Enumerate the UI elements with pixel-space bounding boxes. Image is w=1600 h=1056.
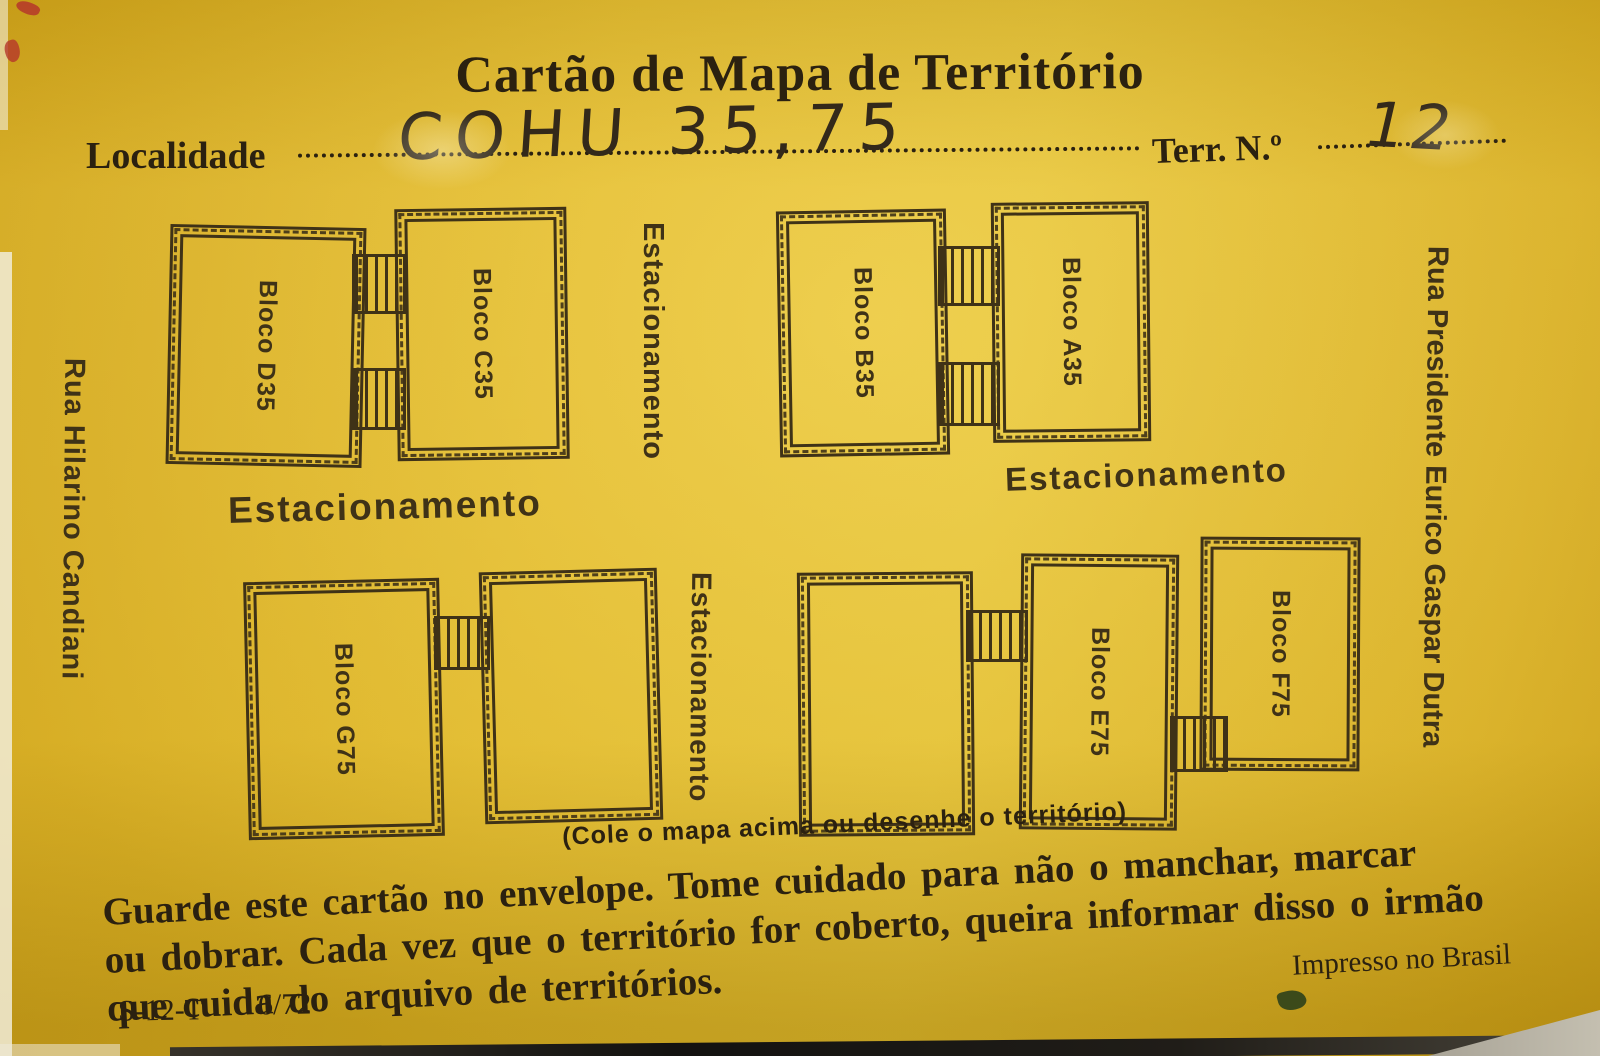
paper-smudge bbox=[372, 110, 512, 190]
block-number: 35 bbox=[848, 369, 880, 399]
block-label-empty bbox=[800, 574, 972, 833]
parking-label-right-horizontal: Estacionamento bbox=[1004, 451, 1288, 499]
block-name: Bloco G bbox=[327, 642, 361, 746]
block-name: Bloco D bbox=[250, 280, 283, 382]
block-d-label: Bloco D 35 bbox=[169, 227, 364, 465]
photo-bottom-edge bbox=[170, 1035, 1600, 1056]
street-label-left: Rua Hilarino Candiani bbox=[55, 358, 91, 681]
block-e-label: Bloco E 75 bbox=[1022, 556, 1176, 827]
locality-label: Localidade bbox=[86, 134, 265, 178]
block-e: Bloco E 75 bbox=[1019, 553, 1179, 830]
block-number: 75 bbox=[1083, 727, 1115, 757]
form-code: S-12-T bbox=[118, 993, 204, 1028]
block-g: Bloco G 75 bbox=[243, 578, 445, 840]
parking-label-left-horizontal: Estacionamento bbox=[228, 482, 543, 532]
connector-g-block bbox=[434, 616, 490, 670]
block-g-label: Bloco G 75 bbox=[246, 581, 442, 837]
block-number: 35 bbox=[467, 370, 499, 400]
parking-label-bottom-vertical: Estacionamento bbox=[683, 572, 717, 803]
block-name: Bloco A bbox=[1055, 257, 1087, 358]
connector-d-c-lower bbox=[352, 368, 406, 430]
connector-d-c-upper bbox=[352, 254, 406, 314]
block-number: 75 bbox=[329, 745, 361, 776]
block-b-label: Bloco B 35 bbox=[779, 212, 947, 455]
block-name: Bloco B bbox=[846, 267, 879, 369]
block-number: 35 bbox=[249, 381, 281, 411]
block-c: Bloco C 35 bbox=[394, 207, 570, 461]
connector-e-f bbox=[1170, 716, 1228, 772]
care-instructions: Guarde este cartão no envelope. Tome cui… bbox=[101, 823, 1556, 1033]
paper-smudge bbox=[1390, 100, 1500, 170]
connector-b-a-upper bbox=[938, 246, 1000, 306]
block-number: 35 bbox=[1056, 357, 1088, 387]
block-label-empty bbox=[482, 571, 660, 821]
street-label-right: Rua Presidente Eurico Gaspar Dutra bbox=[1415, 246, 1453, 748]
paper-edge bbox=[0, 252, 12, 1056]
block-name: Bloco E bbox=[1083, 627, 1115, 727]
block-name: Bloco C bbox=[465, 268, 498, 370]
block-name: Bloco F bbox=[1264, 590, 1296, 689]
block-b: Bloco B 35 bbox=[776, 209, 950, 458]
block-number: 75 bbox=[1264, 688, 1295, 718]
ink-stain bbox=[1276, 987, 1308, 1014]
form-date: 6/72 bbox=[258, 988, 312, 1023]
block-a: Bloco A 35 bbox=[991, 201, 1152, 443]
paper-edge bbox=[0, 1044, 120, 1056]
block-unlabeled-left bbox=[479, 568, 664, 825]
red-pen-mark bbox=[15, 0, 42, 18]
paper-edge bbox=[0, 0, 8, 130]
block-c-label: Bloco C 35 bbox=[397, 210, 566, 458]
connector-b-a-lower bbox=[938, 362, 1000, 426]
block-d: Bloco D 35 bbox=[166, 224, 367, 468]
parking-label-top-vertical: Estacionamento bbox=[636, 222, 669, 460]
block-a-label: Bloco A 35 bbox=[994, 204, 1148, 440]
territory-number-label: Terr. N.º bbox=[1151, 126, 1282, 172]
territory-map-card: Cartão de Mapa de Território Localidade … bbox=[0, 0, 1600, 1056]
connector-block-e bbox=[966, 610, 1028, 662]
block-unlabeled-right bbox=[797, 571, 975, 837]
